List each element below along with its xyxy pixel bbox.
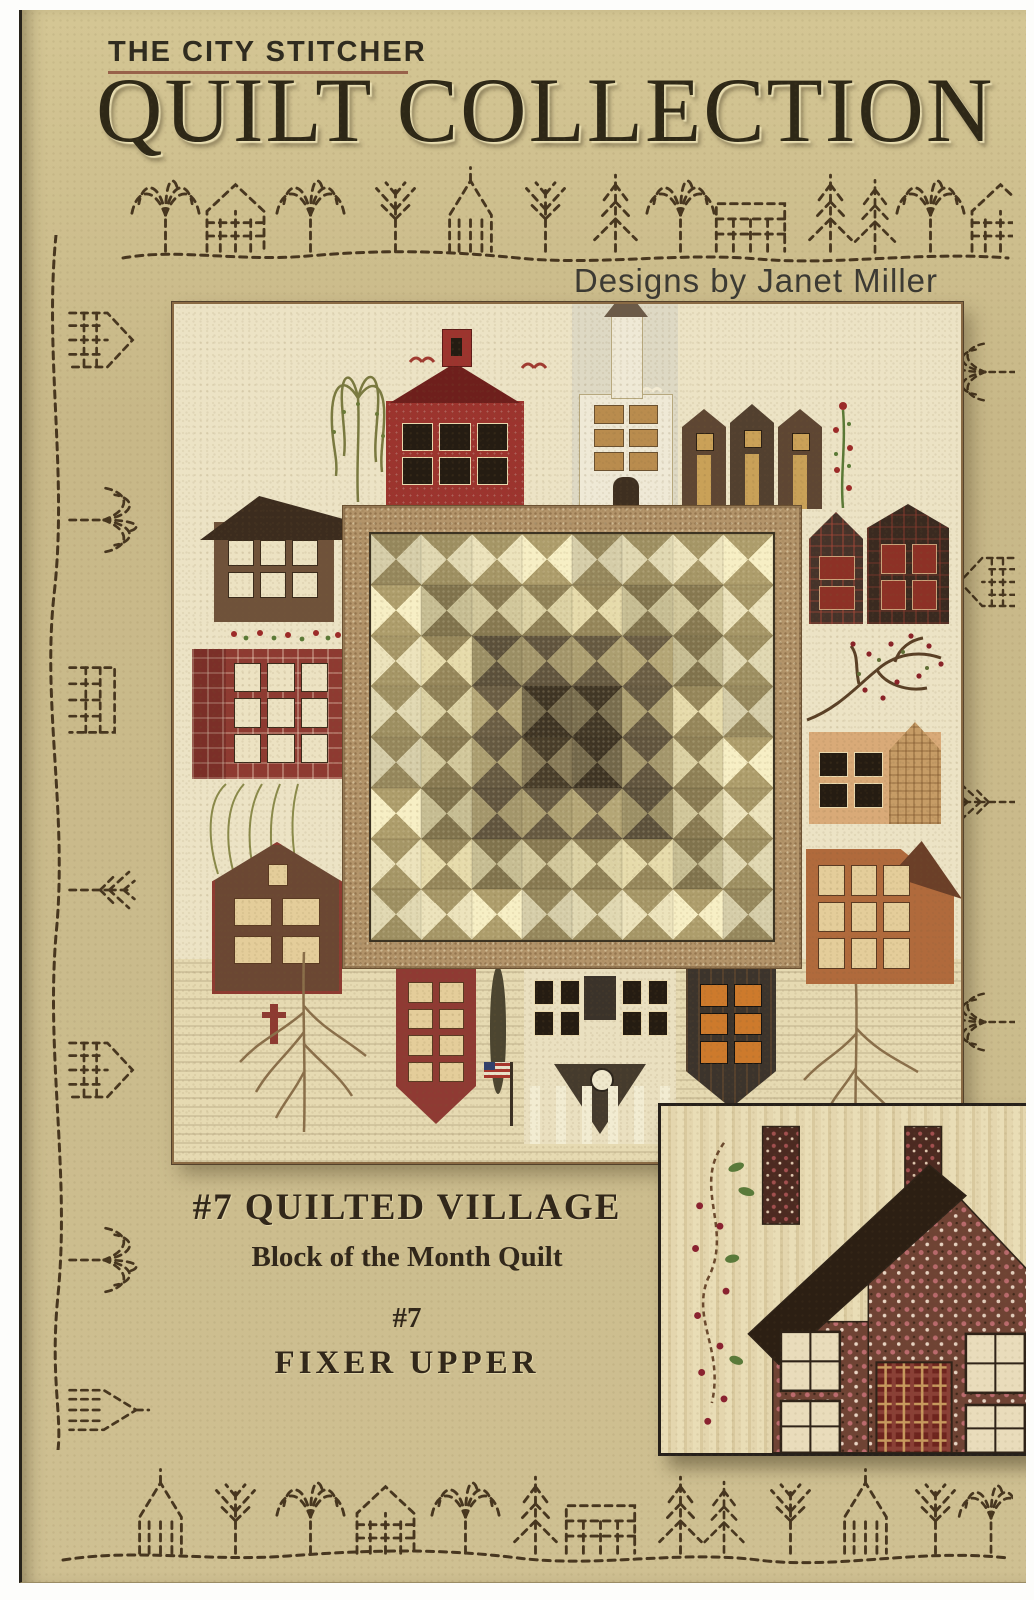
stitched-border-top [118,156,1013,268]
medallion-hourglass-block [622,839,672,890]
stitched-border-left [28,235,163,1450]
stitched-border-bottom [58,1448,1013,1573]
medallion-hourglass-block [421,686,471,737]
medallion-hourglass-block [421,788,471,839]
medallion-hourglass-block [522,889,572,940]
stitched-willow-icon [896,181,964,251]
medallion-hourglass-block [371,585,421,636]
medallion-hourglass-block [472,534,522,585]
stitched-barn-icon [716,204,784,252]
medallion-hourglass-block [421,737,471,788]
medallion-grid [369,532,775,942]
stitched-house-icon [972,185,1013,252]
quilt-peach-house [809,732,941,824]
pattern-subtitle: Block of the Month Quilt [172,1241,642,1274]
medallion-hourglass-block [673,636,723,687]
medallion-hourglass-block [522,788,572,839]
plaid-house-windows [234,663,328,763]
saltbox-windows [228,540,318,598]
stitched-pine-icon [595,175,637,251]
medallion-hourglass-block [572,585,622,636]
stitched-pine-icon [810,175,852,251]
medallion-hourglass-block [673,839,723,890]
medallion-hourglass-block [371,636,421,687]
medallion-hourglass-block [522,686,572,737]
medallion-hourglass-block [622,585,672,636]
peach-house-windows [819,752,883,808]
quilt-rowhouse [730,404,774,509]
medallion-hourglass-block [723,839,773,890]
quilt-plaid-house [192,649,342,779]
us-flag-icon [484,1062,510,1078]
medallion-hourglass-block [472,788,522,839]
block-number: #7 [172,1302,642,1335]
inset-chimney [763,1127,800,1225]
medallion-hourglass-block [421,636,471,687]
medallion-hourglass-block [371,686,421,737]
medallion-hourglass-block [522,585,572,636]
medallion-hourglass-block [723,737,773,788]
medallion-hourglass-block [673,889,723,940]
booklet-cover: THE CITY STITCHER QUILT COLLECTION Desig… [0,0,1034,1600]
medallion-hourglass-block [622,889,672,940]
medallion-hourglass-block [421,534,471,585]
medallion-hourglass-block [472,636,522,687]
quilt-saltbox-house [214,522,334,622]
medallion-hourglass-block [421,585,471,636]
medallion-hourglass-block [723,585,773,636]
page-title: QUILT COLLECTION [96,60,994,161]
medallion-hourglass-block [371,839,421,890]
quilt-rust-house [806,849,954,984]
peach-house-gable [889,722,941,824]
medallion-hourglass-block [622,534,672,585]
flag-pole [510,1062,513,1126]
stitched-pine-icon [855,180,895,252]
medallion-hourglass-block [522,737,572,788]
fixer-upper-block [661,1106,1026,1453]
medallion-hourglass-block [723,686,773,737]
quilt-schoolhouse [386,401,524,505]
medallion-hourglass-block [572,889,622,940]
medallion-hourglass-block [723,534,773,585]
church-windows [594,405,658,471]
stitched-church-icon [450,168,492,252]
flower-row-icon [226,628,346,644]
quilt-rowhouse [682,409,726,509]
medallion-hourglass-block [472,585,522,636]
inset-berry-vine-icon [692,1143,755,1425]
medallion-hourglass-block [371,737,421,788]
stitched-tree-icon [527,183,565,251]
dark-building-windows [700,984,762,1064]
medallion-hourglass-block [673,788,723,839]
medallion-hourglass-block [723,788,773,839]
medallion-hourglass-block [622,737,672,788]
medallion-hourglass-block [472,839,522,890]
stitched-willow-icon [646,181,714,251]
designer-byline: Designs by Janet Miller [574,262,938,300]
willow-tree-icon [322,352,394,504]
red-tower-windows [408,982,464,1082]
medallion-hourglass-block [522,839,572,890]
winter-tree-icon [226,952,381,1137]
stitched-willow-icon [276,181,344,251]
medallion-hourglass-block [472,737,522,788]
medallion-hourglass-block [673,585,723,636]
berry-tree-icon [799,624,954,726]
schoolhouse-windows [402,423,508,485]
manor-windows [819,556,855,610]
clock-hall-attic [584,976,616,1020]
clock-hall-pilasters [530,1086,670,1144]
medallion-hourglass-block [371,889,421,940]
rust-house-windows [818,865,910,969]
quilt-dark-manor [809,504,949,624]
schoolhouse-cupola [442,329,472,367]
inset-plaid-door [876,1362,951,1452]
clock-hall-windows [622,980,668,1036]
medallion-hourglass-block [421,839,471,890]
medallion-hourglass-block [421,889,471,940]
medallion-hourglass-block [572,839,622,890]
medallion-hourglass-block [522,534,572,585]
medallion-hourglass-block [522,636,572,687]
stitched-tree-icon [377,183,415,251]
medallion-hourglass-block [572,534,622,585]
medallion-hourglass-block [371,534,421,585]
medallion-hourglass-block [622,686,672,737]
block-name: FIXER UPPER [172,1345,642,1382]
medallion-hourglass-block [723,889,773,940]
quilt-clock-hall-inverted [524,966,676,1144]
medallion-hourglass-block [572,737,622,788]
medallion-hourglass-block [572,788,622,839]
medallion-hourglass-block [472,889,522,940]
medallion-hourglass-block [371,788,421,839]
manor-windows [881,544,937,610]
medallion-hourglass-block [622,788,672,839]
medallion-hourglass-block [673,686,723,737]
quilt-church [579,394,673,514]
medallion-hourglass-block [572,686,622,737]
inset-photo-fixer-upper [658,1103,1026,1456]
medallion-hourglass-block [572,636,622,687]
church-steeple [611,315,643,399]
medallion-hourglass-block [673,534,723,585]
quilt-rowhouse [778,409,822,509]
cover-page: THE CITY STITCHER QUILT COLLECTION Desig… [19,10,1026,1583]
pattern-title: #7 QUILTED VILLAGE [172,1186,642,1229]
stitched-house-icon [207,185,264,252]
footer-text-block: #7 QUILTED VILLAGE Block of the Month Qu… [172,1186,642,1382]
medallion-hourglass-block [673,737,723,788]
medallion [342,505,802,969]
flower-vine-icon [830,396,856,508]
quilt-photo [172,302,963,1164]
medallion-hourglass-block [472,686,522,737]
medallion-hourglass-block [723,636,773,687]
clock-hall-windows [534,980,580,1036]
medallion-hourglass-block [622,636,672,687]
